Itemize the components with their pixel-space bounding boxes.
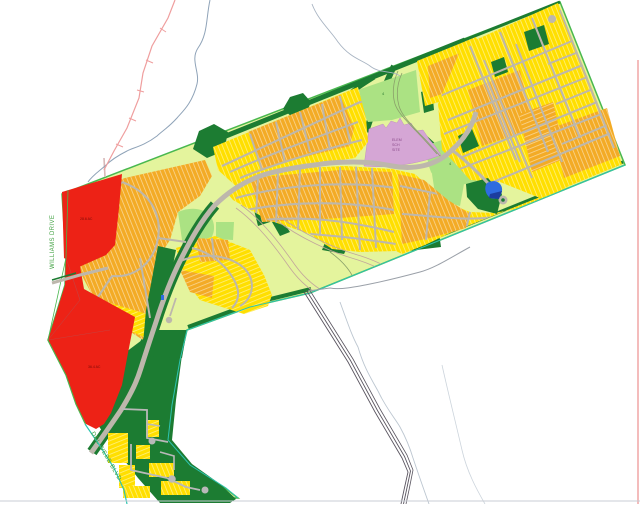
svg-text:28.6 AC: 28.6 AC <box>80 217 93 221</box>
svg-text:SITE: SITE <box>392 148 401 152</box>
svg-text:36.4 AC: 36.4 AC <box>88 365 101 369</box>
svg-text:ELEM: ELEM <box>392 138 402 142</box>
svg-text:WILLIAMS DRIVE: WILLIAMS DRIVE <box>50 215 56 269</box>
svg-text:SCH: SCH <box>392 143 400 147</box>
